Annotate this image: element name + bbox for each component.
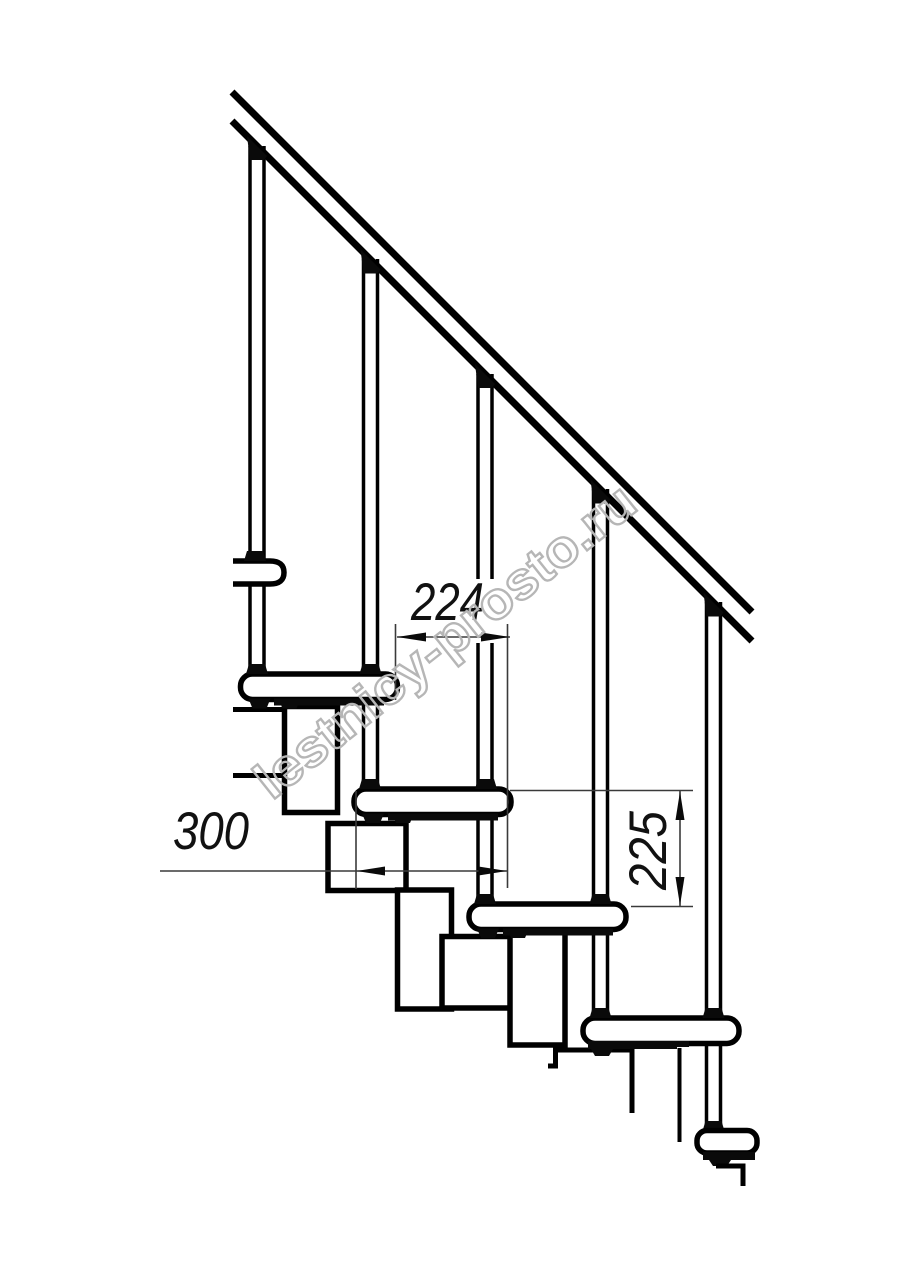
stringer-module-arm-1 — [328, 824, 406, 891]
newel-foot — [697, 1131, 757, 1187]
watermark-text: lestnicy-prosto.ru — [243, 472, 647, 810]
dim-225-label: 225 — [619, 811, 678, 891]
baluster-4 — [594, 489, 608, 1018]
tread-4 — [583, 1018, 739, 1044]
dimension-225: 225 — [510, 791, 693, 907]
stringer-module-vertical-3 — [510, 929, 565, 1045]
stringer-module-arm-3-cut — [548, 1050, 632, 1113]
tread-0-partial — [233, 561, 284, 584]
baluster-1 — [250, 146, 264, 675]
baluster-5 — [707, 602, 721, 1131]
stringer-module-arm-2 — [442, 937, 518, 1009]
foot-pad — [697, 1131, 757, 1154]
tread-3 — [469, 904, 626, 930]
staircase-drawing-page: 224 300 225 lestnicy-prosto.ru — [0, 0, 914, 1280]
floor-cut-line — [716, 1166, 743, 1186]
tread-2 — [354, 789, 511, 815]
staircase-drawing: 224 300 225 lestnicy-prosto.ru — [0, 0, 914, 1280]
dim-300-label: 300 — [173, 802, 249, 861]
